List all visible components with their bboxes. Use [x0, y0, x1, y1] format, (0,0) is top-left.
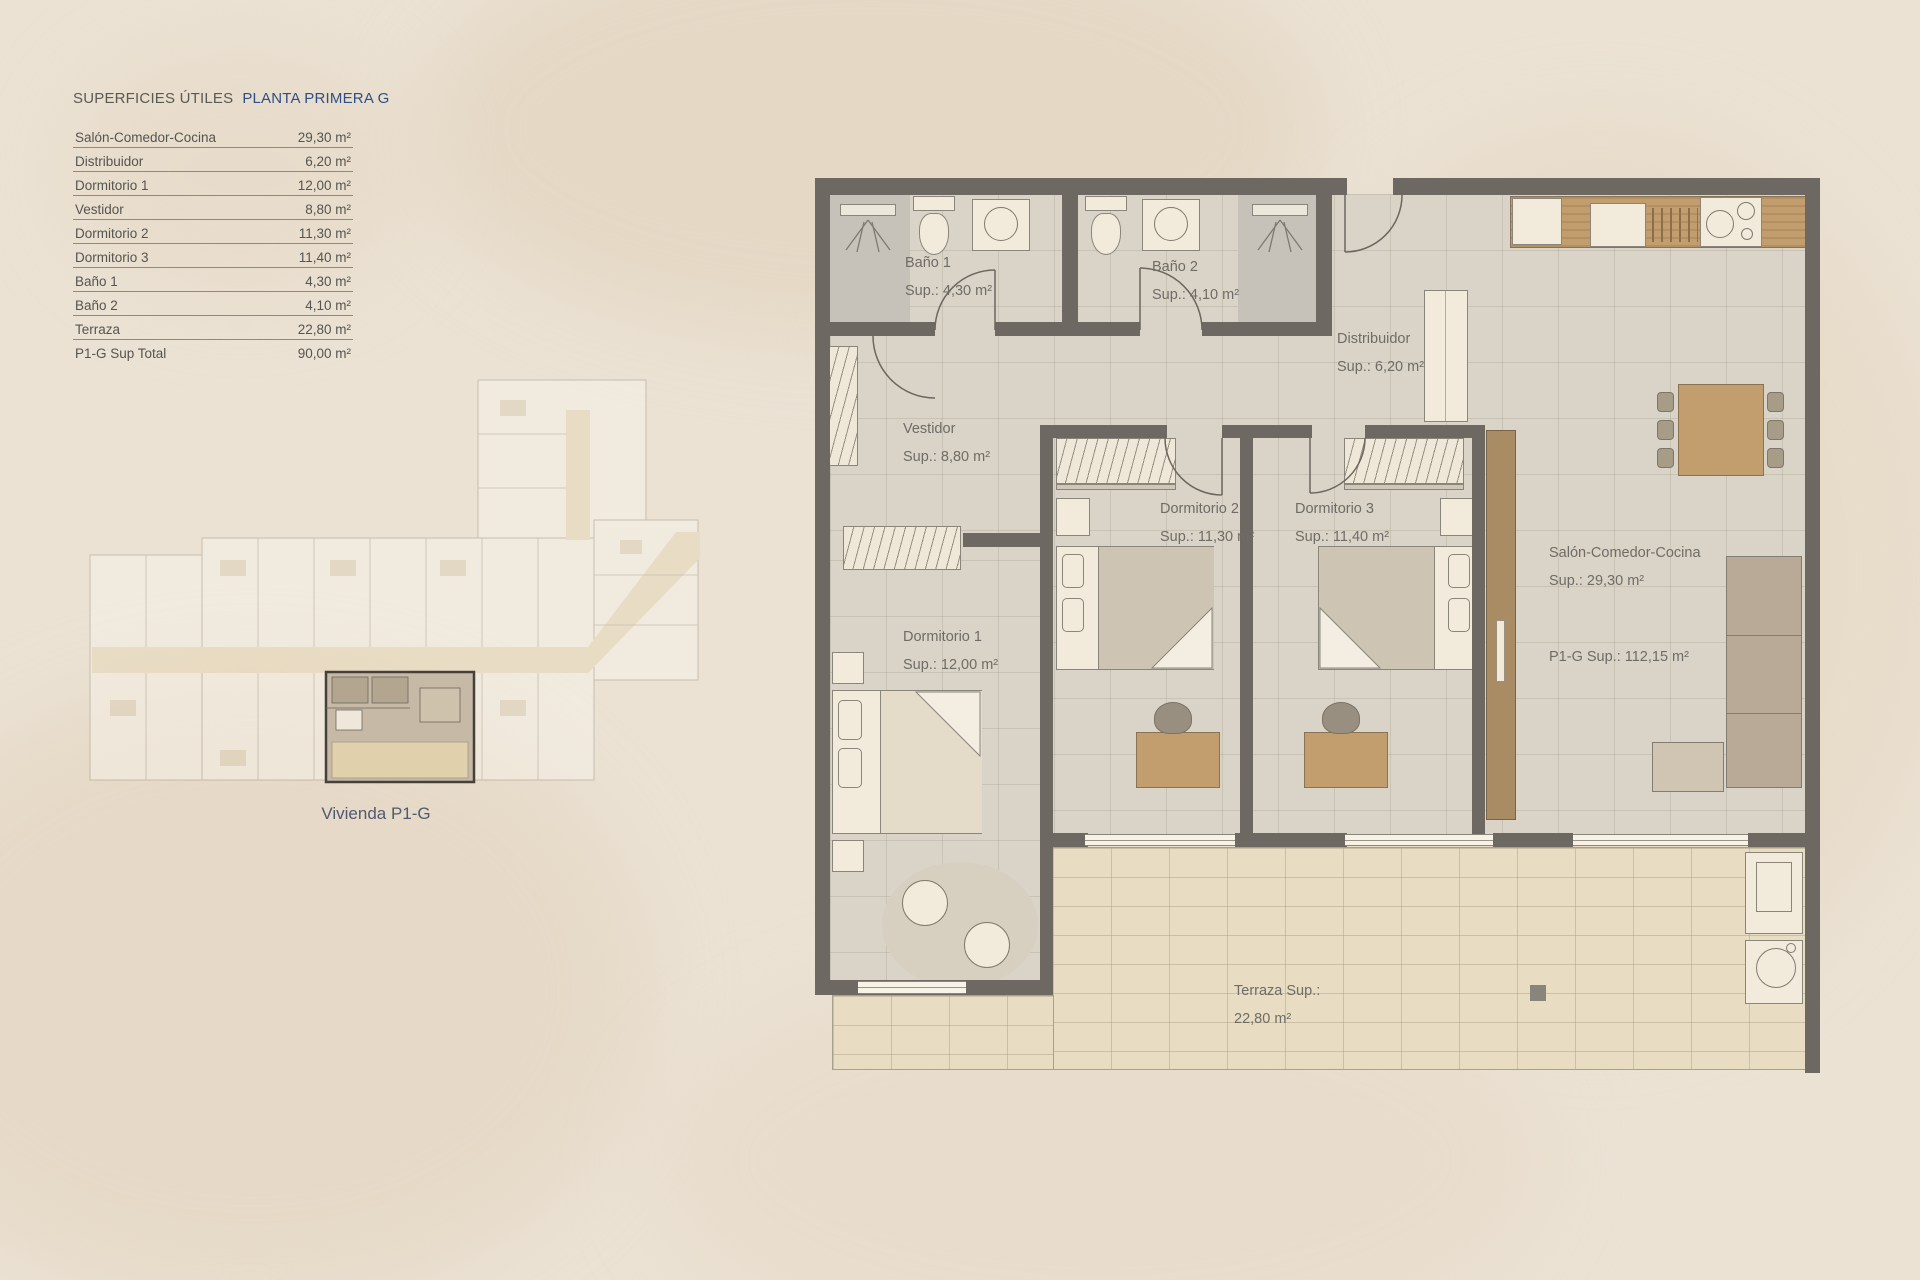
wall [1805, 178, 1820, 1073]
pillow [838, 700, 862, 740]
table-row: Vestidor8,80 m² [73, 196, 353, 220]
wall [1493, 833, 1573, 847]
brochure-page: SUPERFICIES ÚTILESPLANTA PRIMERA G Salón… [0, 0, 1920, 1280]
burner [1737, 202, 1755, 220]
wall [1040, 425, 1053, 995]
wall [1240, 425, 1253, 840]
wardrobe-rail [1056, 484, 1176, 490]
pillow [1448, 554, 1470, 588]
terrace-door [1573, 834, 1748, 846]
basin-bowl [1154, 207, 1188, 241]
room-area: Sup.: 29,30 m² [1549, 573, 1701, 589]
dining-chair [1657, 420, 1674, 440]
wall [1235, 833, 1347, 847]
room-label-distribuidor: Distribuidor Sup.: 6,20 m² [1337, 331, 1424, 375]
desk-chair [1154, 702, 1192, 734]
room-name: Baño 2 [1152, 259, 1239, 275]
row-value: 12,00 m² [298, 178, 351, 193]
wall [1472, 425, 1485, 840]
wall [1062, 178, 1078, 336]
vestidor-wardrobe [828, 346, 858, 466]
overview-highlighted-unit [326, 672, 474, 782]
wall [815, 178, 830, 995]
row-value: 4,30 m² [305, 274, 351, 289]
row-value: 11,30 m² [299, 226, 351, 241]
room-area: Sup.: 4,30 m² [905, 283, 992, 299]
wall [815, 322, 935, 336]
table-row: Dormitorio 211,30 m² [73, 220, 353, 244]
table-row: Dormitorio 311,40 m² [73, 244, 353, 268]
wall [1316, 178, 1332, 336]
desk [1304, 732, 1388, 788]
hall-closet [1424, 290, 1468, 422]
row-value: 11,40 m² [299, 250, 351, 265]
nightstand [1056, 498, 1090, 536]
toilet [913, 196, 955, 211]
row-value: 6,20 m² [305, 154, 351, 169]
basin-bowl [984, 207, 1018, 241]
rug [882, 862, 1038, 988]
wall [815, 178, 1347, 195]
row-value: 8,80 m² [305, 202, 351, 217]
toilet [1085, 196, 1127, 211]
row-label: P1-G Sup Total [75, 346, 166, 361]
terrace-sink-basin [1756, 862, 1792, 912]
row-label: Salón-Comedor-Cocina [75, 130, 216, 145]
burner [1741, 228, 1753, 240]
row-label: Dormitorio 1 [75, 178, 149, 193]
dining-chair [1767, 392, 1784, 412]
sofa [1652, 742, 1724, 792]
row-label: Terraza [75, 322, 120, 337]
room-area: Sup.: 8,80 m² [903, 449, 990, 465]
nightstand [1440, 498, 1474, 536]
fridge [1512, 198, 1562, 245]
room-area: 22,80 m² [1234, 1011, 1320, 1027]
room-label-dormitorio2: Dormitorio 2 Sup.: 11,30 m² [1160, 501, 1254, 545]
room-name: Dormitorio 3 [1295, 501, 1389, 517]
table-row: Baño 14,30 m² [73, 268, 353, 292]
room-label-bano1: Baño 1 Sup.: 4,30 m² [905, 255, 992, 299]
row-label: Dormitorio 2 [75, 226, 149, 241]
toilet-bowl [919, 213, 949, 255]
room-area: Sup.: 12,00 m² [903, 657, 998, 673]
desk [1136, 732, 1220, 788]
room-area: Sup.: 11,40 m² [1295, 529, 1389, 545]
room-label-dormitorio3: Dormitorio 3 Sup.: 11,40 m² [1295, 501, 1389, 545]
washer-knob [1786, 943, 1796, 953]
room-area: Sup.: 6,20 m² [1337, 359, 1424, 375]
window [1085, 834, 1235, 846]
room-name: Vestidor [903, 421, 990, 437]
room-label-vestidor: Vestidor Sup.: 8,80 m² [903, 421, 990, 465]
overview-plan [80, 370, 710, 820]
bed-blanket [880, 691, 982, 833]
table-row: Dormitorio 112,00 m² [73, 172, 353, 196]
room-name: Baño 1 [905, 255, 992, 271]
dining-chair [1657, 392, 1674, 412]
terrace-floor-left [832, 995, 1054, 1070]
wall [1393, 178, 1820, 195]
bed-blanket [1319, 547, 1435, 669]
desk-chair [1322, 702, 1360, 734]
room-label-salon: Salón-Comedor-Cocina Sup.: 29,30 m² [1549, 545, 1701, 589]
shower-head-bar [840, 204, 896, 216]
row-value: 22,80 m² [298, 322, 351, 337]
dining-chair [1767, 420, 1784, 440]
room-area: Sup.: 4,10 m² [1152, 287, 1239, 303]
row-label: Baño 2 [75, 298, 118, 313]
row-label: Dormitorio 3 [75, 250, 149, 265]
total-area: P1-G Sup.: 112,15 m² [1549, 649, 1689, 665]
wardrobe-rail [1344, 484, 1464, 490]
wall [1202, 322, 1332, 336]
wall [1748, 833, 1820, 847]
armchair [964, 922, 1010, 968]
washer-drum [1756, 948, 1796, 988]
burner [1706, 210, 1734, 238]
armchair [902, 880, 948, 926]
floor-drain [1530, 985, 1546, 1001]
room-area: Sup.: 11,30 m² [1160, 529, 1254, 545]
balcony-door [858, 981, 966, 994]
areas-table-title: SUPERFICIES ÚTILESPLANTA PRIMERA G [73, 90, 353, 107]
row-value: 4,10 m² [305, 298, 351, 313]
room-label-terraza: Terraza Sup.: 22,80 m² [1234, 983, 1320, 1027]
wall [963, 533, 1041, 547]
areas-table: SUPERFICIES ÚTILESPLANTA PRIMERA G Salón… [73, 90, 353, 363]
wardrobe [1344, 438, 1464, 484]
areas-title-left: SUPERFICIES ÚTILES [73, 90, 233, 107]
wardrobe [1056, 438, 1176, 484]
plan-total-label: P1-G Sup.: 112,15 m² [1549, 649, 1689, 665]
row-label: Distribuidor [75, 154, 143, 169]
room-name: Terraza Sup.: [1234, 983, 1320, 999]
wall [1222, 425, 1312, 438]
wall [1365, 425, 1475, 438]
table-row: Distribuidor6,20 m² [73, 148, 353, 172]
pillow [838, 748, 862, 788]
row-label: Baño 1 [75, 274, 118, 289]
tv-shelf-unit [1726, 556, 1802, 788]
room-name: Distribuidor [1337, 331, 1424, 347]
row-value: 29,30 m² [298, 130, 351, 145]
room-label-bano2: Baño 2 Sup.: 4,10 m² [1152, 259, 1239, 303]
table-row: Baño 24,10 m² [73, 292, 353, 316]
row-label: Vestidor [75, 202, 124, 217]
dining-chair [1767, 448, 1784, 468]
nightstand [832, 652, 864, 684]
toilet-bowl [1091, 213, 1121, 255]
dining-table [1678, 384, 1764, 476]
table-row: Salón-Comedor-Cocina29,30 m² [73, 124, 353, 148]
table-row: Terraza22,80 m² [73, 316, 353, 340]
terrace-floor [1052, 847, 1807, 1070]
shower-head-bar [1252, 204, 1308, 216]
room-name: Dormitorio 1 [903, 629, 998, 645]
sliding-door-handle [1496, 620, 1505, 682]
nightstand [832, 840, 864, 872]
window [1345, 834, 1493, 846]
bed-blanket [1098, 547, 1214, 669]
pillow [1062, 554, 1084, 588]
dining-chair [1657, 448, 1674, 468]
wall [1040, 833, 1088, 847]
areas-title-right: PLANTA PRIMERA G [242, 90, 389, 107]
pillow [1448, 598, 1470, 632]
wall [1040, 425, 1167, 438]
room-name: Salón-Comedor-Cocina [1549, 545, 1701, 561]
areas-table-rows: Salón-Comedor-Cocina29,30 m² Distribuido… [73, 124, 353, 363]
sink-drainer [1652, 208, 1698, 242]
table-row-total: P1-G Sup Total90,00 m² [73, 340, 353, 363]
overview-caption: Vivienda P1-G [286, 804, 466, 824]
vestidor-wardrobe [843, 526, 961, 570]
room-label-dormitorio1: Dormitorio 1 Sup.: 12,00 m² [903, 629, 998, 673]
row-value: 90,00 m² [298, 346, 351, 361]
pillow [1062, 598, 1084, 632]
kitchen-sink [1590, 203, 1646, 247]
room-name: Dormitorio 2 [1160, 501, 1254, 517]
